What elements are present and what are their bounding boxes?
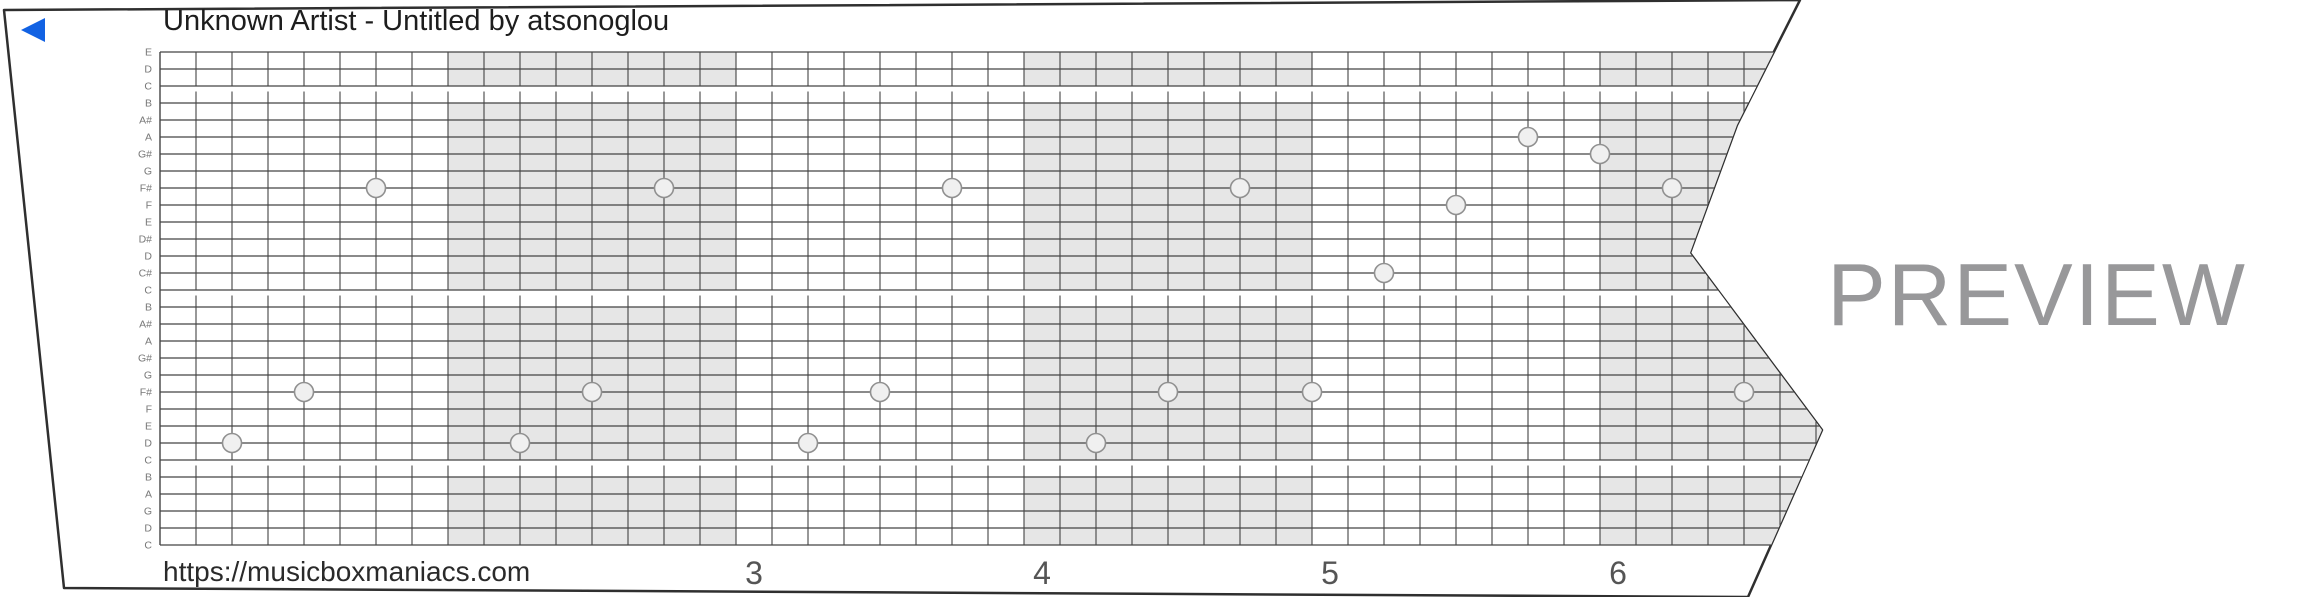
note-hole <box>655 179 674 198</box>
note-name-label: C <box>144 81 152 93</box>
note-name-label: G <box>144 370 152 382</box>
note-name-label: G# <box>138 149 152 161</box>
note-name-label: D# <box>139 234 153 246</box>
preview-canvas: EDCBA#AG#GF#FED#DC#CBA#AG#GF#FEDCBAGDC U… <box>0 0 2310 597</box>
note-hole <box>583 383 602 402</box>
note-name-label: F <box>146 200 152 212</box>
note-name-label: D <box>144 251 152 263</box>
note-name-label: E <box>145 421 152 433</box>
note-name-label: F <box>146 404 152 416</box>
note-hole <box>1591 145 1610 164</box>
note-name-label: B <box>145 472 152 484</box>
preview-watermark: PREVIEW <box>1827 245 2247 344</box>
site-url: https://musicboxmaniacs.com <box>163 556 530 587</box>
note-hole <box>871 383 890 402</box>
note-name-label: E <box>145 47 152 59</box>
note-hole <box>1663 179 1682 198</box>
note-name-label: B <box>145 302 152 314</box>
note-name-label: E <box>145 217 152 229</box>
note-hole <box>223 434 242 453</box>
note-name-label: D <box>144 64 152 76</box>
note-name-label: B <box>145 98 152 110</box>
note-hole <box>295 383 314 402</box>
measure-number: 5 <box>1321 555 1339 591</box>
octave-gap-band <box>160 461 1860 477</box>
note-hole <box>1375 264 1394 283</box>
note-name-label: F# <box>140 387 152 399</box>
note-hole <box>1159 383 1178 402</box>
note-name-label: C <box>144 285 152 297</box>
note-hole <box>943 179 962 198</box>
note-hole <box>1087 434 1106 453</box>
note-name-label: F# <box>140 183 152 195</box>
measure-number: 4 <box>1033 555 1051 591</box>
note-name-label: A <box>145 132 152 144</box>
note-name-label: A# <box>139 319 152 331</box>
note-name-label: A# <box>139 115 152 127</box>
note-hole <box>1231 179 1250 198</box>
strip-title: Unknown Artist - Untitled by atsonoglou <box>163 5 669 37</box>
note-name-label: A <box>145 336 152 348</box>
note-name-label: D <box>144 438 152 450</box>
note-name-label: A <box>145 489 152 501</box>
note-hole <box>511 434 530 453</box>
note-hole <box>1303 383 1322 402</box>
note-hole <box>367 179 386 198</box>
note-name-label: C <box>144 540 152 552</box>
note-name-label: C <box>144 455 152 467</box>
note-hole <box>799 434 818 453</box>
note-name-label: G# <box>138 353 152 365</box>
measure-number: 3 <box>745 555 763 591</box>
music-box-preview-page: EDCBA#AG#GF#FED#DC#CBA#AG#GF#FEDCBAGDC U… <box>0 0 2310 597</box>
measure-number: 6 <box>1609 555 1627 591</box>
note-hole <box>1519 128 1538 147</box>
note-name-label: G <box>144 506 152 518</box>
octave-gap-band <box>160 87 1860 103</box>
note-name-label: D <box>144 523 152 535</box>
note-name-label: G <box>144 166 152 178</box>
octave-gap-band <box>160 291 1860 307</box>
note-name-label: C# <box>139 268 153 280</box>
note-hole <box>1447 196 1466 215</box>
note-hole <box>1735 383 1754 402</box>
